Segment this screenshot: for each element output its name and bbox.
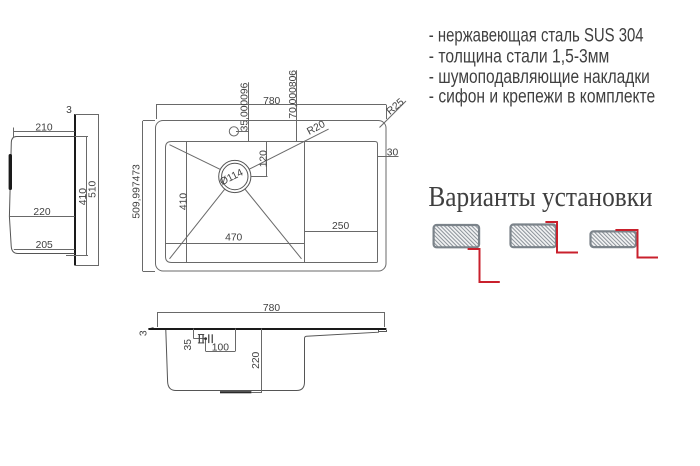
svg-text:Варианты установки: Варианты установки — [428, 182, 652, 213]
svg-text:250: 250 — [332, 221, 349, 232]
svg-text:220: 220 — [33, 207, 50, 218]
svg-text:510: 510 — [87, 180, 98, 197]
svg-text:3: 3 — [66, 105, 72, 116]
svg-text:470: 470 — [225, 232, 242, 243]
svg-text:35,000096: 35,000096 — [239, 82, 250, 131]
svg-text:210: 210 — [35, 122, 52, 133]
svg-text:220: 220 — [251, 351, 262, 368]
svg-text:- шумоподавляющие накладки: - шумоподавляющие накладки — [429, 66, 650, 88]
svg-text:- нержавеющая сталь SUS 304: - нержавеющая сталь SUS 304 — [429, 25, 644, 47]
svg-text:205: 205 — [36, 240, 53, 251]
svg-text:509,997473: 509,997473 — [131, 164, 142, 219]
svg-text:100: 100 — [212, 343, 229, 354]
svg-text:120: 120 — [258, 150, 269, 167]
svg-text:410: 410 — [179, 193, 190, 210]
svg-text:780: 780 — [263, 303, 280, 314]
svg-text:- толщина стали 1,5-3мм: - толщина стали 1,5-3мм — [429, 45, 610, 67]
svg-text:3: 3 — [138, 330, 149, 336]
svg-text:- сифон и крепежи в комплекте: - сифон и крепежи в комплекте — [429, 86, 655, 108]
svg-text:70,000806: 70,000806 — [288, 70, 299, 119]
svg-text:R25: R25 — [385, 97, 407, 118]
svg-text:30: 30 — [387, 148, 399, 159]
svg-text:35: 35 — [183, 339, 194, 351]
svg-text:Ø114: Ø114 — [218, 167, 245, 188]
svg-text:780: 780 — [263, 96, 280, 107]
